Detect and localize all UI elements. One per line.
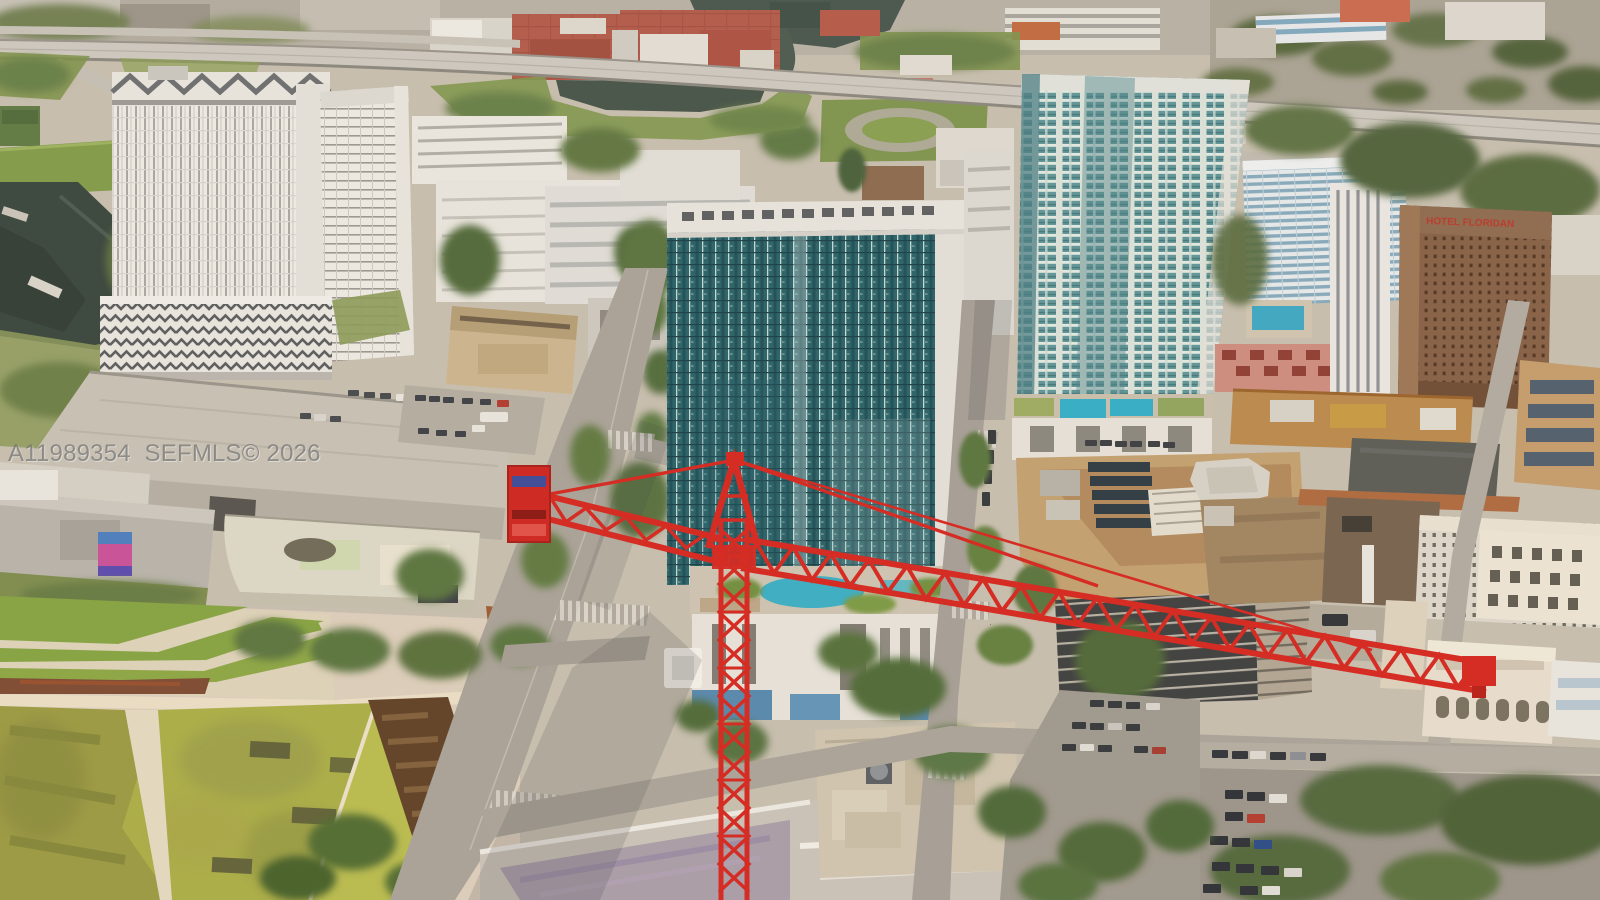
svg-text:A11989354 SEFMLS© 2026: A11989354 SEFMLS© 2026 [8, 440, 321, 467]
